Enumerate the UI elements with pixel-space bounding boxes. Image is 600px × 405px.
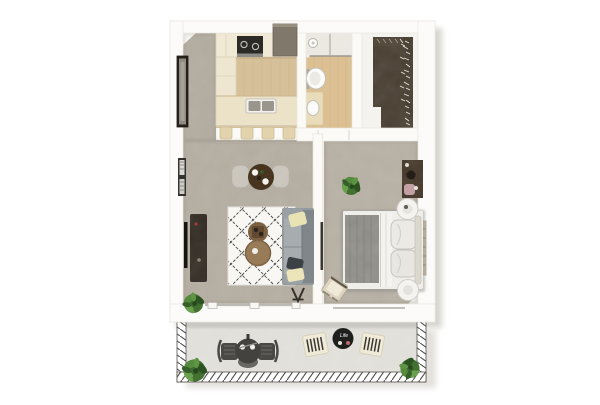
svg-text:Life: Life: [340, 333, 348, 339]
